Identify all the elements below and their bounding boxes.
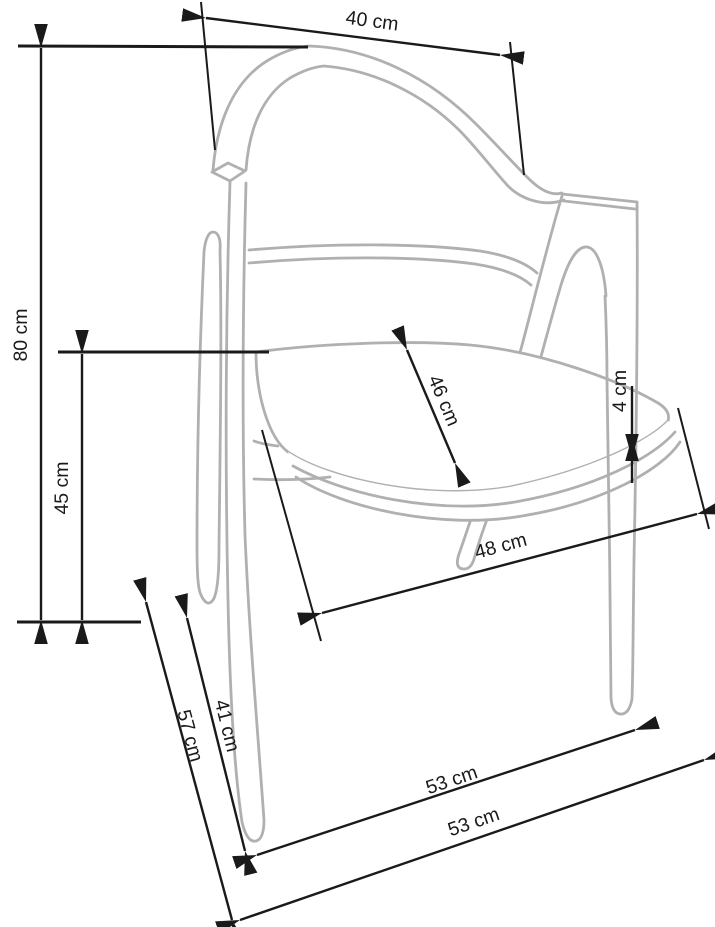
chair-armrest-inner [246,66,564,203]
dim-label-total-height: 80 cm [10,308,32,361]
dim-label-seat-thickness: 4 cm [609,370,631,412]
chair-backrest-rail-bottom [249,258,531,285]
dim-label-backrest-width: 40 cm [344,7,400,36]
diagram-canvas: 40 cm 80 cm 45 cm 46 cm 4 cm 48 cm 41 cm… [0,0,715,927]
chair-armrest-outer [213,46,562,194]
dim-label-base-span-lower: 53 cm [445,803,502,841]
ext-line-40-left [201,2,215,150]
chair-outline [197,46,681,841]
ext-line-40-right [510,42,524,175]
ext-line-48-right [678,408,709,529]
dim-label-seat-height: 45 cm [51,461,73,514]
chair-rear-left-leg [197,232,221,603]
chair-post-top-cap [212,163,245,181]
chair-apron-line-lower [254,477,330,480]
chair-dimension-diagram: 40 cm 80 cm 45 cm 46 cm 4 cm 48 cm 41 cm… [0,0,715,927]
chair-rear-right-panel-top-inner [564,201,635,209]
dim-label-leg-span-outer: 57 cm [172,707,207,764]
dim-arrow-48 [322,514,697,613]
dim-label-base-span-upper: 53 cm [423,761,480,799]
ref-line-top [18,46,308,47]
